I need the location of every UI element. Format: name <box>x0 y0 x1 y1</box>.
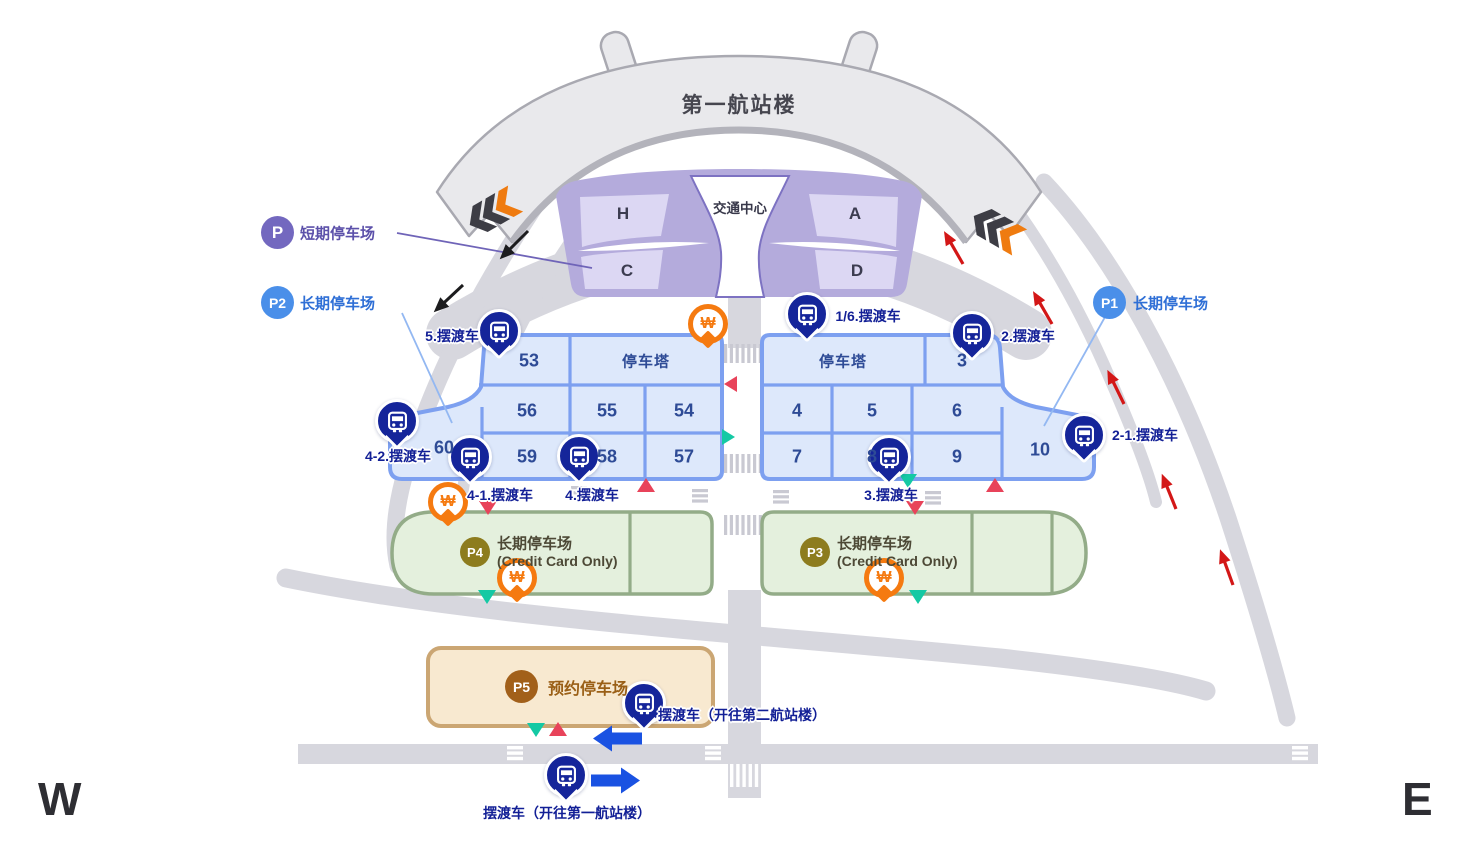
shuttle-label-3: 3.摆渡车 <box>864 485 918 505</box>
east-cell-4: 4 <box>792 401 802 422</box>
p1-label: 长期停车场 <box>1133 293 1208 314</box>
entry-marker-teal-down <box>527 723 545 737</box>
west-parking-tower: 停车塔 <box>622 351 670 372</box>
entry-marker-teal-down <box>478 590 496 604</box>
bus-icon <box>386 410 409 433</box>
p2-label: 长期停车场 <box>300 293 375 314</box>
zone-d-label: D <box>851 261 863 281</box>
west-cell-54: 54 <box>674 401 694 422</box>
terminal-title: 第一航站楼 <box>682 89 797 119</box>
entry-marker-red-left <box>724 376 737 392</box>
bus-icon <box>961 322 984 345</box>
airport-parking-map: 第一航站楼 交通中心 H A C D P 短期停车场 P2 长期停车场 P1 长… <box>0 0 1478 858</box>
badge-p-short-term: P <box>261 216 294 249</box>
short-term-label: 短期停车场 <box>300 223 375 244</box>
badge-p3: P3 <box>800 537 830 567</box>
bus-icon <box>1073 424 1096 447</box>
won-symbol: ₩ <box>440 493 455 511</box>
compass-west: W <box>38 772 81 826</box>
crosswalk-center-2 <box>724 454 762 473</box>
shuttle-stop-4-2-pin <box>375 399 419 443</box>
east-cell-5: 5 <box>867 401 877 422</box>
badge-p2: P2 <box>261 286 294 319</box>
shuttle-stop-4-pin <box>557 434 601 478</box>
badge-p4: P4 <box>460 537 490 567</box>
p4-label: 长期停车场 <box>497 533 572 554</box>
p4-sublabel: (Credit Card Only) <box>497 553 618 569</box>
bus-icon <box>555 764 578 787</box>
west-cell-53: 53 <box>519 351 539 372</box>
p3-sublabel: (Credit Card Only) <box>837 553 958 569</box>
shuttle-stop-to-t1-pin <box>544 753 588 797</box>
shuttle-stop-4-1-pin <box>448 435 492 479</box>
east-cell-10: 10 <box>1030 440 1050 461</box>
zone-h-label: H <box>617 204 629 224</box>
bus-icon <box>796 303 819 326</box>
transport-center-label: 交通中心 <box>713 197 767 217</box>
east-parking-tower: 停车塔 <box>819 351 867 372</box>
shuttle-label-4: 4.摆渡车 <box>565 485 619 505</box>
east-cell-3: 3 <box>957 351 967 372</box>
east-cell-7: 7 <box>792 447 802 468</box>
west-cell-60: 60 <box>434 438 454 459</box>
shuttle-label-to-t2: 摆渡车（开往第二航站楼） <box>658 705 826 725</box>
won-symbol: ₩ <box>509 569 524 587</box>
shuttle-stop-2-pin <box>950 311 994 355</box>
badge-p1: P1 <box>1093 286 1126 319</box>
entry-marker-teal-down <box>909 590 927 604</box>
zone-c-label: C <box>621 261 633 281</box>
shuttle-label-2: 2.摆渡车 <box>1001 326 1055 346</box>
won-symbol: ₩ <box>876 569 891 587</box>
west-cell-55: 55 <box>597 401 617 422</box>
won-symbol: ₩ <box>700 315 715 333</box>
p5-label: 预约停车场 <box>548 675 628 699</box>
badge-p5: P5 <box>505 670 538 703</box>
won-payment-icon: ₩ <box>688 304 728 344</box>
crosswalk-center-3 <box>724 515 762 535</box>
shuttle-label-4-1: 4-1.摆渡车 <box>467 485 533 505</box>
west-cell-58: 58 <box>597 447 617 468</box>
shuttle-stop-1-6-pin <box>785 292 829 336</box>
bus-icon <box>568 445 591 468</box>
won-payment-icon: ₩ <box>428 482 468 522</box>
shuttle-label-2-1: 2-1.摆渡车 <box>1112 425 1178 445</box>
zone-a-label: A <box>849 204 861 224</box>
west-cell-56: 56 <box>517 401 537 422</box>
east-cell-6: 6 <box>952 401 962 422</box>
west-cell-57: 57 <box>674 447 694 468</box>
shuttle-label-4-2: 4-2.摆渡车 <box>365 446 431 466</box>
bus-icon <box>459 446 482 469</box>
map-graphics <box>0 0 1478 858</box>
blue-arrow-right-icon <box>591 768 640 794</box>
bus-icon <box>633 692 656 715</box>
west-cell-59: 59 <box>517 447 537 468</box>
entry-marker-teal-right <box>722 429 735 445</box>
p3-label: 长期停车场 <box>837 533 912 554</box>
entry-marker-red-up <box>986 478 1004 492</box>
shuttle-stop-2-1-pin <box>1062 413 1106 457</box>
shuttle-label-1-6: 1/6.摆渡车 <box>835 306 900 326</box>
compass-east: E <box>1402 772 1433 826</box>
shuttle-label-to-t1: 摆渡车（开往第一航站楼） <box>483 803 651 823</box>
bus-icon <box>878 446 901 469</box>
short-term-parking-complex <box>556 169 922 297</box>
entry-marker-red-up <box>549 722 567 736</box>
bus-icon <box>488 320 511 343</box>
shuttle-label-5: 5.摆渡车 <box>425 326 479 346</box>
east-cell-9: 9 <box>952 447 962 468</box>
shuttle-stop-5-pin <box>477 309 521 353</box>
entry-marker-red-up <box>637 478 655 492</box>
east-cell-8: 8 <box>867 447 877 468</box>
